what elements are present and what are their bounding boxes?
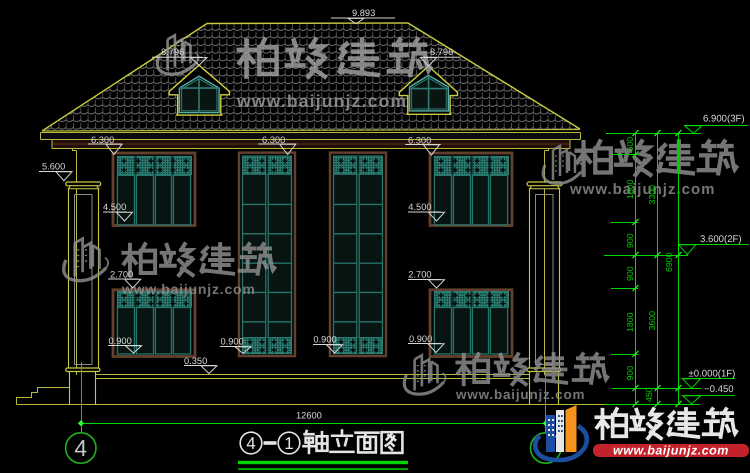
svg-text:4.500: 4.500 xyxy=(103,202,126,212)
svg-text:8.796: 8.796 xyxy=(430,47,453,57)
svg-text:6.300: 6.300 xyxy=(408,135,431,145)
svg-text:3600: 3600 xyxy=(647,311,657,331)
svg-text:900: 900 xyxy=(625,233,635,248)
svg-text:www.baijunjz.com: www.baijunjz.com xyxy=(455,387,585,402)
svg-text:4: 4 xyxy=(246,434,255,453)
svg-text:0.350: 0.350 xyxy=(184,356,207,366)
svg-text:1800: 1800 xyxy=(625,312,635,332)
svg-text:450: 450 xyxy=(644,387,654,402)
svg-text:8.796: 8.796 xyxy=(161,47,184,57)
svg-text:0.900: 0.900 xyxy=(221,337,244,347)
svg-text:5.600: 5.600 xyxy=(42,162,65,172)
svg-text:2.700: 2.700 xyxy=(408,270,431,280)
svg-text:2.700: 2.700 xyxy=(110,269,133,279)
svg-text:4.500: 4.500 xyxy=(408,202,431,212)
svg-text:www.baijunjz.com: www.baijunjz.com xyxy=(569,181,715,198)
svg-text:9.893: 9.893 xyxy=(352,8,375,18)
svg-text:6900: 6900 xyxy=(664,252,674,272)
svg-text:±0.000(1F): ±0.000(1F) xyxy=(689,368,736,379)
svg-text:1: 1 xyxy=(284,434,293,453)
svg-text:0.900: 0.900 xyxy=(313,335,336,345)
svg-text:4: 4 xyxy=(74,435,87,461)
svg-text:12600: 12600 xyxy=(296,411,322,421)
svg-text:900: 900 xyxy=(625,366,635,381)
svg-text:3.600(2F): 3.600(2F) xyxy=(700,234,742,245)
svg-text:6.300: 6.300 xyxy=(91,135,114,145)
svg-text:−0.450: −0.450 xyxy=(704,384,734,395)
svg-text:6.300: 6.300 xyxy=(262,135,285,145)
svg-text:3300: 3300 xyxy=(647,185,657,205)
svg-text:0.900: 0.900 xyxy=(409,334,432,344)
svg-text:1800: 1800 xyxy=(625,179,635,199)
svg-text:600: 600 xyxy=(625,137,635,152)
svg-text:900: 900 xyxy=(625,266,635,281)
svg-text:www.baijunjz.com: www.baijunjz.com xyxy=(236,91,407,111)
svg-text:www.baijunjz.com: www.baijunjz.com xyxy=(613,444,729,458)
svg-text:6.900(3F): 6.900(3F) xyxy=(703,114,745,125)
svg-text:www.baijunjz.com: www.baijunjz.com xyxy=(121,281,256,297)
svg-text:0.900: 0.900 xyxy=(109,336,132,346)
